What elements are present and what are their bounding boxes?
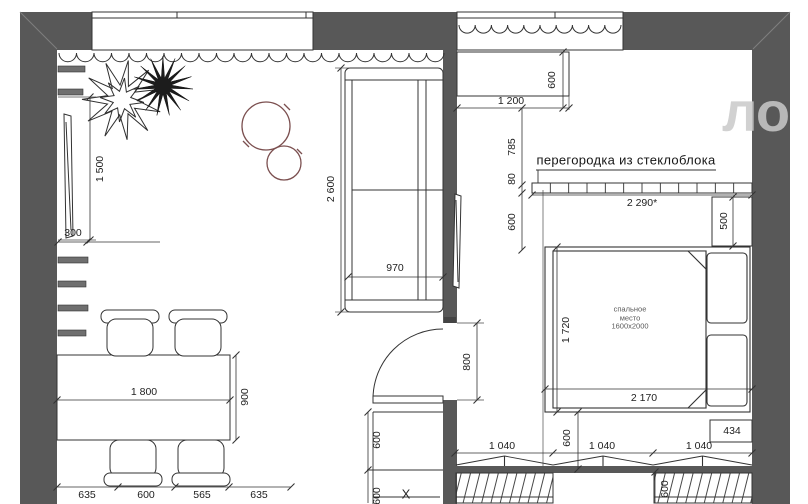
- dim-label: 300: [64, 228, 82, 239]
- dim-label: 785: [507, 138, 518, 156]
- door-swing-arc: [373, 329, 443, 399]
- dim-label: 434: [723, 426, 741, 437]
- dim-label: 1 040: [589, 441, 615, 452]
- dim-label: 565: [193, 490, 211, 501]
- watermark: ло: [722, 84, 789, 140]
- dim-label: 970: [386, 263, 404, 274]
- wall-bottom-bedroom: [457, 466, 752, 473]
- bed-pillow-bottom: [707, 335, 747, 406]
- dim-label: 1 800: [131, 387, 157, 398]
- dim-label: 600: [562, 429, 573, 447]
- pouf-small: [267, 146, 301, 180]
- sliding-door-symbols: [456, 456, 752, 466]
- dim-label: 2 170: [631, 393, 657, 404]
- dim-label: 635: [78, 490, 96, 501]
- dim-label: 600: [660, 480, 671, 498]
- plan-linework: [0, 0, 808, 504]
- mirror-bedroom: [453, 194, 461, 288]
- wardrobes: [456, 473, 752, 503]
- dim-label: 500: [719, 212, 730, 230]
- floor-plan: 1 5003002 6009701 8009006356005656356001…: [0, 0, 808, 504]
- window-bedroom: [457, 12, 623, 50]
- wall-top-middle: [313, 12, 457, 50]
- dim-label: 800: [462, 353, 473, 371]
- dim-label: 900: [240, 388, 251, 406]
- dim-label: 1 040: [686, 441, 712, 452]
- dim-label: 635: [250, 490, 268, 501]
- bed-label: спальное место 1600x2000: [611, 305, 648, 331]
- chair: [101, 310, 159, 356]
- dim-label: 600: [547, 71, 558, 89]
- partition-label: перегородка из стеклоблока: [537, 153, 716, 168]
- sofa: [345, 68, 443, 312]
- pouf-large: [242, 102, 290, 150]
- bed-label-line3: 1600x2000: [611, 322, 648, 331]
- x-mark: X: [402, 487, 411, 502]
- dim-label: 1 200: [498, 96, 524, 107]
- wardrobe-hatch-left: [456, 473, 553, 503]
- dim-label: 1 040: [489, 441, 515, 452]
- door-jamb: [444, 317, 456, 323]
- dim-label: 600: [372, 431, 383, 449]
- dim-label: 1 500: [95, 156, 106, 182]
- dim-label: 2 290*: [627, 198, 657, 209]
- dim-label: 80: [507, 173, 518, 185]
- chair: [104, 440, 162, 486]
- dim-label: 600: [137, 490, 155, 501]
- dim-label: 1 720: [561, 317, 572, 343]
- plants: [82, 56, 193, 140]
- poufs: [242, 102, 302, 180]
- chair: [172, 440, 230, 486]
- dim-label: 600: [372, 487, 383, 504]
- mirror-left: [64, 114, 73, 238]
- wall-shelves: [58, 66, 88, 336]
- wall-divider-lower: [443, 400, 457, 504]
- curtain-icon: [59, 53, 444, 62]
- wall-left: [20, 12, 57, 504]
- glass-block-partition: [532, 183, 752, 193]
- partition-leader: [536, 170, 716, 183]
- door: [373, 317, 456, 403]
- dim-label: 2 600: [326, 176, 337, 202]
- window-living: [92, 12, 313, 50]
- chair: [169, 310, 227, 356]
- door-leaf: [373, 396, 443, 403]
- bed-pillow-top: [707, 253, 747, 323]
- dim-label: 600: [507, 213, 518, 231]
